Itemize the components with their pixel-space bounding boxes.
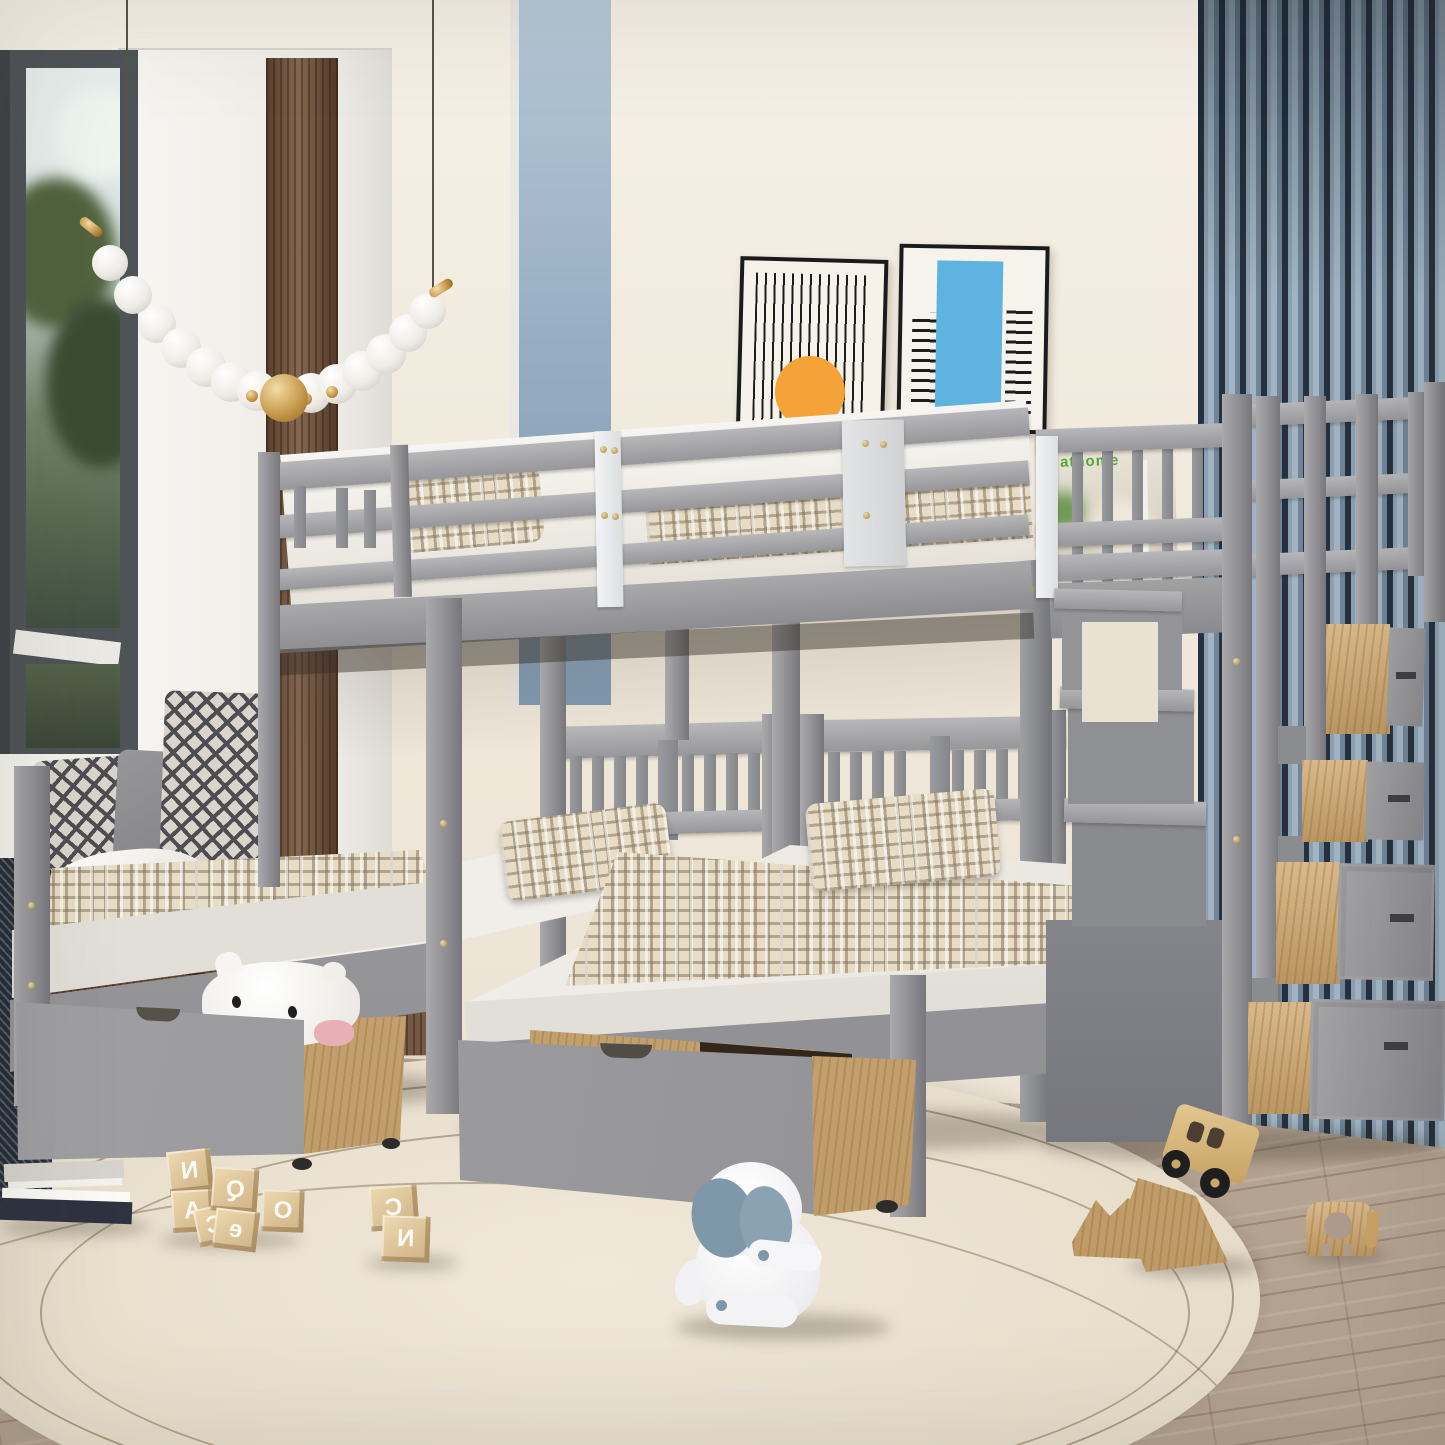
block-letter: Q xyxy=(225,1175,246,1204)
puppy-joint xyxy=(716,1300,727,1311)
screw xyxy=(28,982,35,989)
toy-elephant-trunk xyxy=(1365,1212,1379,1249)
headboard2-slat xyxy=(996,749,1008,805)
toy-elephant-leg-gap xyxy=(1322,1244,1330,1256)
pendant-wire xyxy=(126,0,128,252)
stair-drawer2-handle xyxy=(1388,795,1410,802)
stair-drawer2-wood xyxy=(1302,760,1368,842)
pink-toy xyxy=(314,1020,354,1046)
screw xyxy=(601,512,608,519)
pendant-gold-spacer xyxy=(246,390,258,402)
stair-drawer3-front xyxy=(1337,863,1435,981)
window-glass-lower xyxy=(26,664,120,748)
stair-riser-3 xyxy=(1072,822,1206,926)
stair-drawer1-wood xyxy=(1326,624,1390,734)
alphabet-block: O xyxy=(261,1189,304,1232)
stair-guard-board xyxy=(1356,394,1378,632)
sky-patch xyxy=(56,88,120,178)
screw xyxy=(1233,658,1240,665)
screw xyxy=(862,440,869,447)
headboard1-slat xyxy=(592,756,604,814)
center-front-post xyxy=(426,598,462,1114)
toy-car-wheel xyxy=(1162,1150,1190,1178)
bunk-end-baluster xyxy=(294,486,306,548)
stair-drawer3-handle xyxy=(1390,914,1414,922)
drawer2-caster xyxy=(876,1200,898,1213)
screw xyxy=(863,512,870,519)
puppy-joint xyxy=(758,1250,769,1261)
headboard1-slat xyxy=(682,754,694,812)
bedroom-photo: athome xyxy=(0,0,1445,1445)
stair-riser-2 xyxy=(1068,708,1194,804)
stair-drawer4-wood xyxy=(1248,1002,1312,1114)
head-white-board xyxy=(1036,436,1058,598)
screw xyxy=(28,902,35,909)
screw xyxy=(440,940,447,947)
pendant-bead xyxy=(92,245,128,281)
stair-frame-tab xyxy=(1278,726,1306,764)
screw xyxy=(611,447,618,454)
guardrail-light-board xyxy=(842,419,907,566)
stair-drawer4-front xyxy=(1309,999,1445,1121)
pillow2-plaid xyxy=(805,788,1002,892)
toy-elephant-leg-gap xyxy=(1344,1244,1352,1256)
screw xyxy=(600,446,607,453)
drawer1-caster xyxy=(292,1158,312,1170)
poster-right-stripes-right xyxy=(1005,306,1033,414)
stair-tread-1 xyxy=(1054,588,1182,611)
stair-wall-gap xyxy=(1082,622,1158,722)
drawer1-caster xyxy=(382,1138,400,1149)
alphabet-block: N xyxy=(381,1215,431,1263)
bunk-end-baluster xyxy=(364,490,376,548)
block-letter: O xyxy=(273,1197,293,1226)
stair-drawer4-handle xyxy=(1384,1042,1408,1050)
block-letter: e xyxy=(228,1215,245,1244)
screw xyxy=(880,441,887,448)
block-letter: N xyxy=(180,1156,200,1186)
poster-right-blue-rect xyxy=(935,260,1004,413)
pendant-gold-ball xyxy=(260,374,308,422)
screw xyxy=(612,513,619,520)
screw xyxy=(1233,836,1240,843)
headboard1-slat xyxy=(726,753,738,811)
toy-elephant-hole xyxy=(1324,1212,1352,1240)
headboard1-slat xyxy=(614,756,626,814)
bunk-left-end-post xyxy=(258,452,280,887)
headboard1-slat xyxy=(748,753,760,811)
stair-corner-post xyxy=(1424,382,1445,622)
stair-drawer1-handle xyxy=(1396,672,1416,679)
bunk-end-baluster xyxy=(336,488,348,548)
guardrail-white-board xyxy=(594,431,623,607)
toy-car-wheel xyxy=(1200,1168,1230,1198)
screw xyxy=(440,820,447,827)
stair-guard-board xyxy=(1304,396,1326,768)
alphabet-block: N xyxy=(166,1148,214,1194)
pendant-wire xyxy=(432,0,434,296)
stairs-base-panel xyxy=(1046,920,1242,1142)
headboard1-slat xyxy=(570,756,582,814)
window-glass xyxy=(26,68,120,628)
alphabet-block: e xyxy=(212,1207,261,1252)
pendant-gold-spacer xyxy=(326,386,338,398)
throw-pillow-diamond-large xyxy=(159,690,270,876)
headboard2-slat xyxy=(828,752,840,808)
block-letter: N xyxy=(397,1225,415,1254)
stair-drawer3-wood xyxy=(1276,862,1340,984)
book-cover-bottom xyxy=(0,1198,132,1225)
headboard1-slat xyxy=(704,754,716,812)
pendant-bead xyxy=(410,293,446,329)
alphabet-block: Q xyxy=(211,1166,260,1213)
